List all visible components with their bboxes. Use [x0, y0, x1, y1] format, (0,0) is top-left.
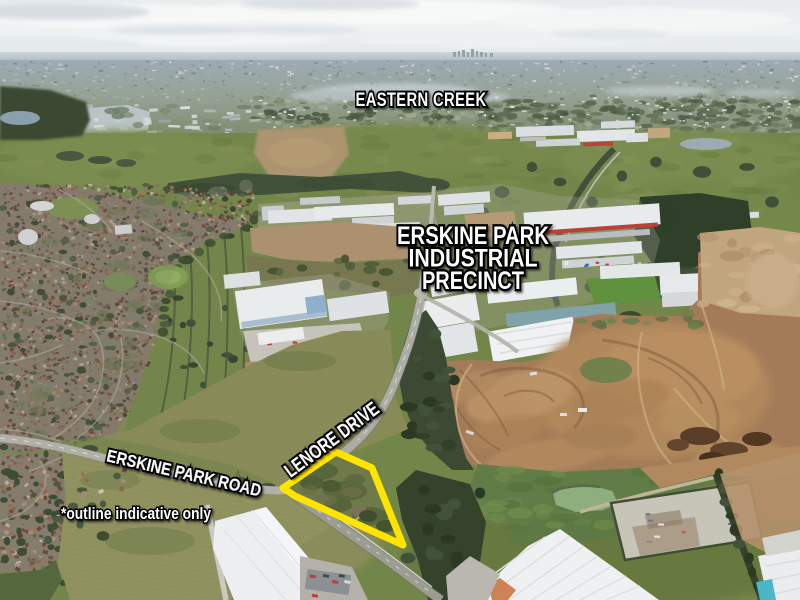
svg-text:PRECINCT: PRECINCT: [422, 267, 524, 295]
svg-text:EASTERN CREEK: EASTERN CREEK: [356, 90, 487, 111]
svg-text:*outline indicative only: *outline indicative only: [61, 505, 212, 523]
